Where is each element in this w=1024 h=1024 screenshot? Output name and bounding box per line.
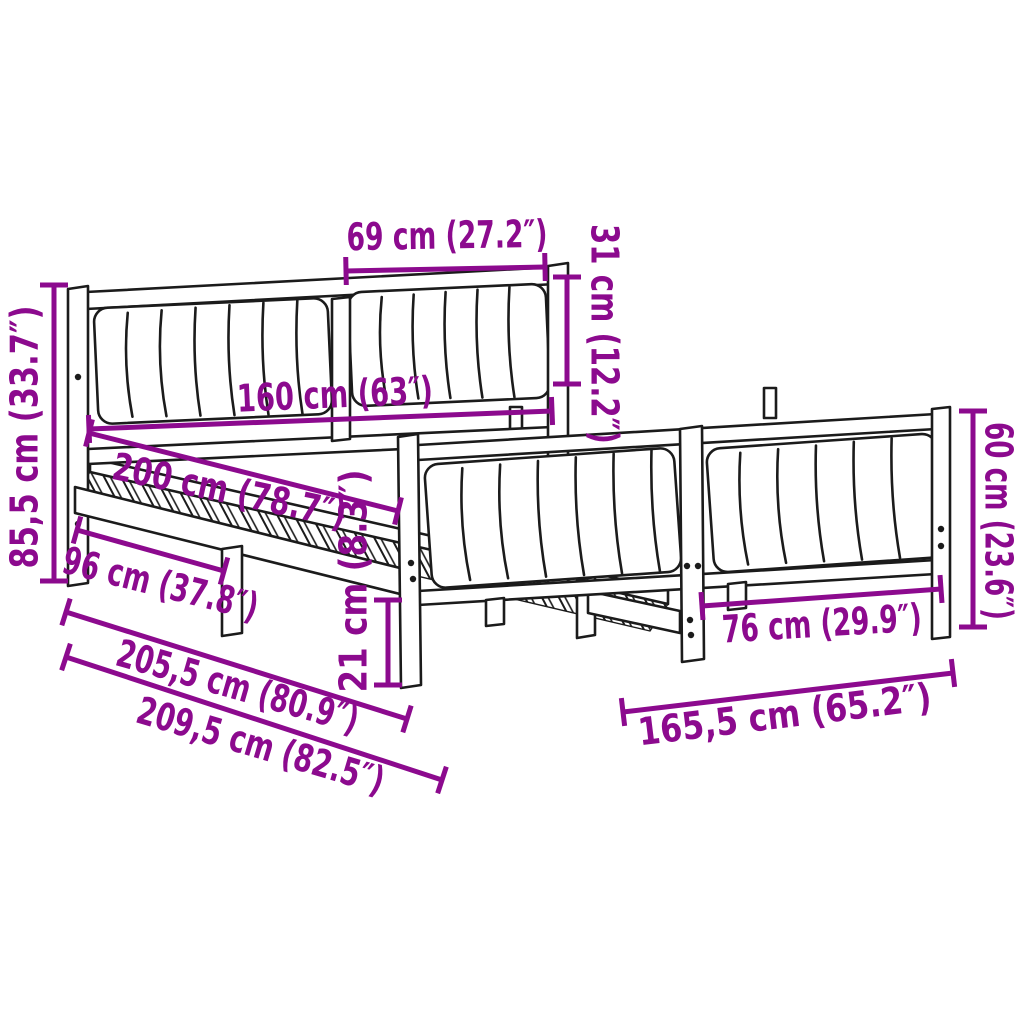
screw — [75, 374, 81, 380]
footboard-cushion-right — [706, 433, 944, 573]
dimension-footboard-height: 60 cm (23.6″) — [959, 411, 1021, 627]
dimension-end-tick — [951, 659, 954, 687]
dimension-label-headboard-height: 85,5 cm (33.7″) — [3, 306, 47, 569]
dimension-end-tick — [346, 257, 347, 285]
dimension-label-headboard-cushion-height: 31 cm (12.2″) — [583, 224, 627, 444]
dimension-label-headboard-cushion-width: 69 cm (27.2″) — [346, 212, 548, 260]
footboard-center-post — [680, 426, 704, 662]
screw — [408, 560, 414, 566]
dimension-frame-width-total: 165,5 cm (65.2″) — [621, 659, 954, 754]
dimension-end-tick — [940, 575, 942, 603]
dimension-end-tick — [551, 397, 552, 425]
screw — [695, 563, 701, 569]
product-dimension-diagram: 69 cm (27.2″)31 cm (12.2″)160 cm (63″)20… — [0, 0, 1024, 1024]
dimension-label-frame-width-total: 165,5 cm (65.2″) — [636, 675, 934, 755]
screw — [684, 563, 690, 569]
diagram-canvas: 69 cm (27.2″)31 cm (12.2″)160 cm (63″)20… — [0, 0, 1024, 1024]
dimension-headboard-height: 85,5 cm (33.7″) — [3, 285, 69, 581]
screw — [410, 576, 416, 582]
dimension-end-tick — [701, 592, 703, 620]
rail-connector-peg — [764, 388, 776, 418]
screw — [938, 526, 944, 532]
dimension-label-footboard-height: 60 cm (23.6″) — [977, 422, 1021, 620]
screw — [687, 617, 693, 623]
footboard-far-post — [932, 407, 950, 639]
footboard-cushion-left — [424, 447, 682, 588]
dimension-end-tick — [545, 253, 546, 281]
screw — [688, 632, 694, 638]
screw — [938, 543, 944, 549]
dimension-label-leg-height: 21 cm (8.3″) — [332, 470, 376, 693]
slat-holder-tab — [486, 598, 504, 626]
dimension-end-tick — [621, 698, 624, 726]
dimension-label-bed-width: 160 cm (63″) — [236, 368, 434, 421]
